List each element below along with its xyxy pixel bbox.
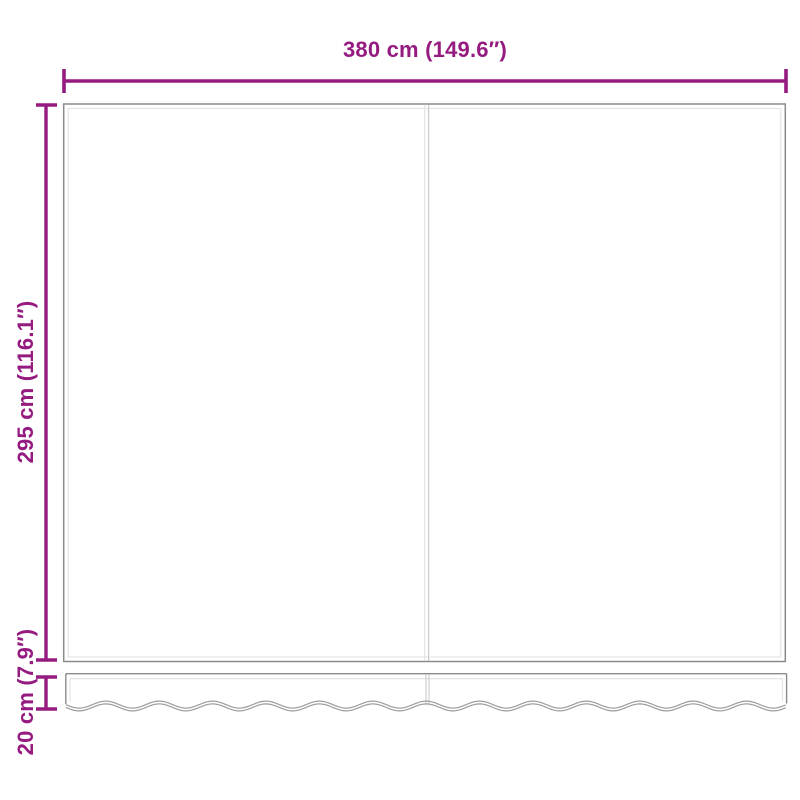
valance-height-dimension-label: 20 cm (7.9″) [13, 629, 38, 756]
valance-height-dimension: 20 cm (7.9″) [13, 629, 57, 756]
height-dimension-label: 295 cm (116.1″) [13, 301, 38, 464]
valance [66, 674, 787, 711]
height-dimension: 295 cm (116.1″) [13, 105, 57, 660]
width-dimension-label: 380 cm (149.6″) [343, 37, 507, 62]
fabric-panel [64, 104, 786, 662]
width-dimension: 380 cm (149.6″) [64, 37, 786, 93]
dimension-diagram: 380 cm (149.6″) 295 cm (116.1″) 20 cm (7… [0, 0, 800, 800]
